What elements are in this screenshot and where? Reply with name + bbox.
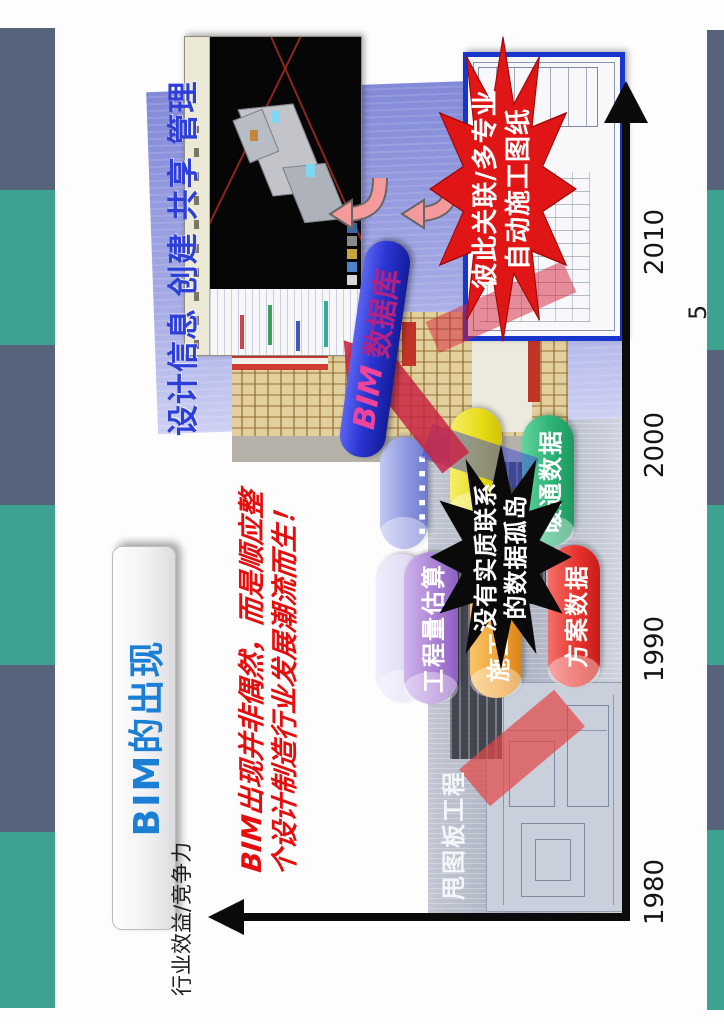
red-star-line1: 彼此关联/多专业 (470, 89, 503, 289)
toolbar-button (347, 249, 357, 259)
intro-line2: 个设计制造行业发展潮流而生！ (269, 314, 302, 877)
x-axis-line (622, 121, 630, 921)
slide-title: BIM的出现 (118, 640, 170, 837)
presentation-slide: 甩图板工程 设计信息 创建 共享 管理 (0, 0, 724, 1024)
page-number: 5 (684, 305, 712, 320)
y-axis-label: 行业效益/竞争力 (166, 842, 196, 996)
panel-header: 设计信息 创建 共享 管理 (158, 16, 203, 436)
decor-segment (0, 832, 55, 1008)
decor-segment (707, 665, 724, 830)
x-axis-arrowhead (604, 81, 648, 123)
bottom-decor-bar (707, 0, 724, 1024)
decor-segment (0, 345, 55, 505)
era-band-label: 甩图板工程 (434, 770, 469, 900)
black-star-line2: 的数据孤岛 (501, 495, 531, 620)
y-axis-line (244, 913, 630, 921)
decor-segment (707, 350, 724, 505)
red-star-line2: 自动施工图纸 (503, 108, 536, 270)
top-decor-bar (0, 0, 55, 1024)
year-tick-2000: 2000 (640, 390, 670, 500)
model-detail (250, 130, 258, 141)
year-tick-2010: 2010 (640, 187, 670, 297)
blueprint-detail (613, 695, 614, 905)
toolbar-button (347, 275, 357, 285)
year-tick-1990: 1990 (640, 594, 670, 704)
black-starburst: 没有实质联系 的数据孤岛 (428, 442, 574, 672)
intro-statement: BIM出现并非偶然，而是顺应整 个设计制造行业发展潮流而生！ (236, 311, 302, 878)
curved-arrow-icon (328, 172, 388, 238)
gantt-bar (324, 301, 328, 347)
blueprint-detail (535, 839, 571, 881)
model-detail (306, 164, 315, 177)
intro-line1: BIM出现并非偶然，而是顺应整 (236, 311, 269, 874)
decor-segment (707, 190, 724, 350)
decor-segment (707, 30, 724, 190)
decor-segment (707, 505, 724, 665)
year-tick-1980: 1980 (640, 837, 670, 947)
decor-segment (707, 830, 724, 1010)
blueprint-detail (503, 695, 504, 905)
decor-segment (0, 665, 55, 832)
decor-segment (0, 28, 55, 190)
model-detail (272, 111, 280, 123)
app-3d-viewport (210, 37, 361, 289)
black-star-text: 没有实质联系 的数据孤岛 (428, 442, 574, 672)
y-axis-arrowhead (208, 899, 244, 935)
decor-segment (0, 505, 55, 665)
black-star-line1: 没有实质联系 (471, 482, 501, 632)
red-starburst: 彼此关联/多专业 自动施工图纸 (428, 34, 578, 344)
red-star-text: 彼此关联/多专业 自动施工图纸 (428, 34, 578, 344)
decor-segment (0, 190, 55, 345)
toolbar-button (347, 262, 357, 272)
photo-detail (402, 322, 416, 366)
slide-screenshot: 甩图板工程 设计信息 创建 共享 管理 (0, 0, 724, 1024)
bim-database-label-prefix: BIM (346, 363, 390, 431)
